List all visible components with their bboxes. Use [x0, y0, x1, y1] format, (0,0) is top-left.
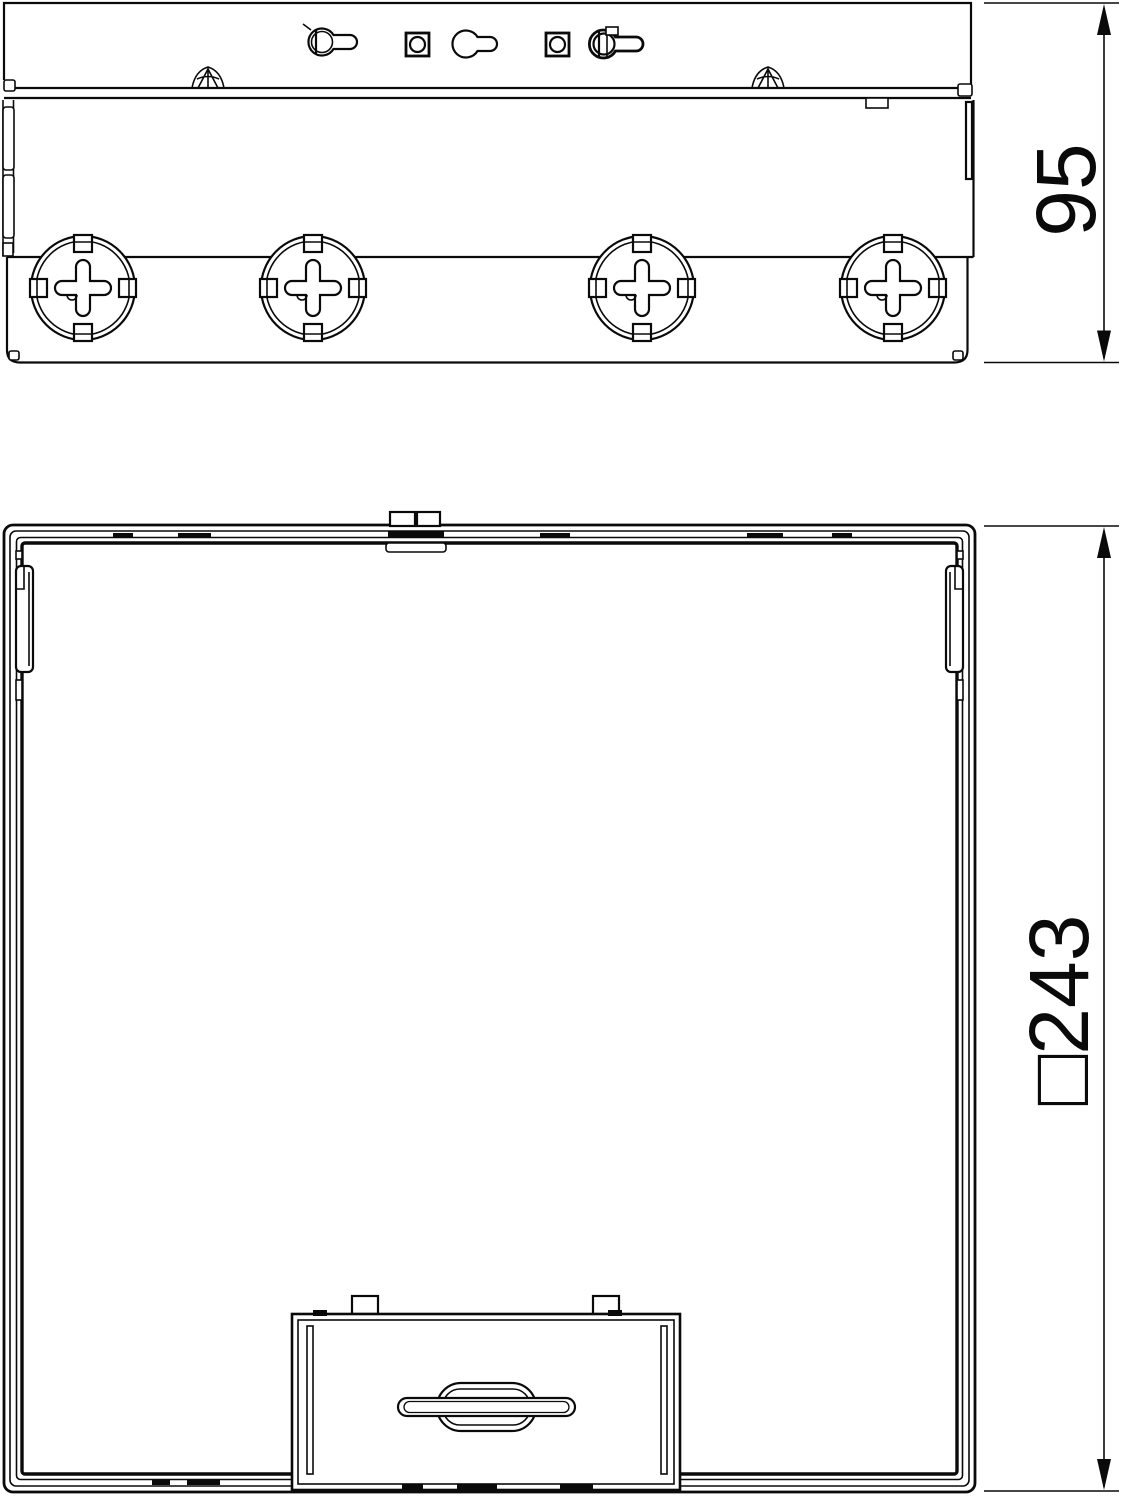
dimension-arrow-down: [1097, 331, 1111, 362]
plan-view: [4, 512, 975, 1492]
dimension-width-243: □243: [984, 526, 1119, 1491]
flange-outline: [4, 3, 971, 84]
plan-clip-right: [946, 551, 963, 700]
dimension-arrow-up: [1097, 4, 1111, 35]
side-height-dimension-label: 95: [1019, 143, 1113, 236]
technical-drawing-page: 95: [0, 0, 1121, 1500]
foot-left: [9, 351, 19, 360]
side-lower-body: [7, 257, 968, 363]
knockout-2: [260, 235, 366, 341]
side-flange: [4, 3, 972, 108]
plan-top-tabs: [386, 512, 446, 552]
dimension-arrow-up: [1097, 527, 1111, 558]
dimension-arrow-down: [1097, 1459, 1111, 1490]
foot-right: [953, 351, 963, 360]
flange-latch-right: [866, 98, 888, 108]
keyhole-slot-with-screw-right: [589, 27, 643, 58]
clamp-marker-left: [192, 67, 224, 88]
clamp-marker-right: [752, 67, 784, 88]
flange-holes: [303, 24, 643, 58]
cassette-tab-left: [352, 1296, 378, 1314]
side-elevation-view: [3, 3, 974, 363]
square-hole-2: [546, 33, 569, 56]
plan-clip-left: [16, 551, 33, 700]
side-right-wall: [966, 100, 974, 257]
handle-bar: [398, 1398, 575, 1416]
technical-drawing-canvas: 95: [0, 0, 1121, 1500]
flange-corner-left: [4, 80, 15, 91]
keyhole-slot-with-screw-left: [303, 24, 357, 56]
dimension-height-95: 95: [984, 3, 1119, 363]
keyhole-slot-plain: [452, 30, 497, 57]
plan-cassette: [292, 1296, 680, 1490]
knockout-3: [589, 235, 695, 341]
square-hole-1: [406, 33, 429, 56]
side-left-wall-clips: [3, 100, 14, 256]
knockout-1: [30, 235, 136, 341]
plan-width-dimension-label: □243: [1012, 915, 1106, 1106]
flange-corner-right: [958, 84, 972, 96]
knockout-4: [840, 235, 946, 341]
